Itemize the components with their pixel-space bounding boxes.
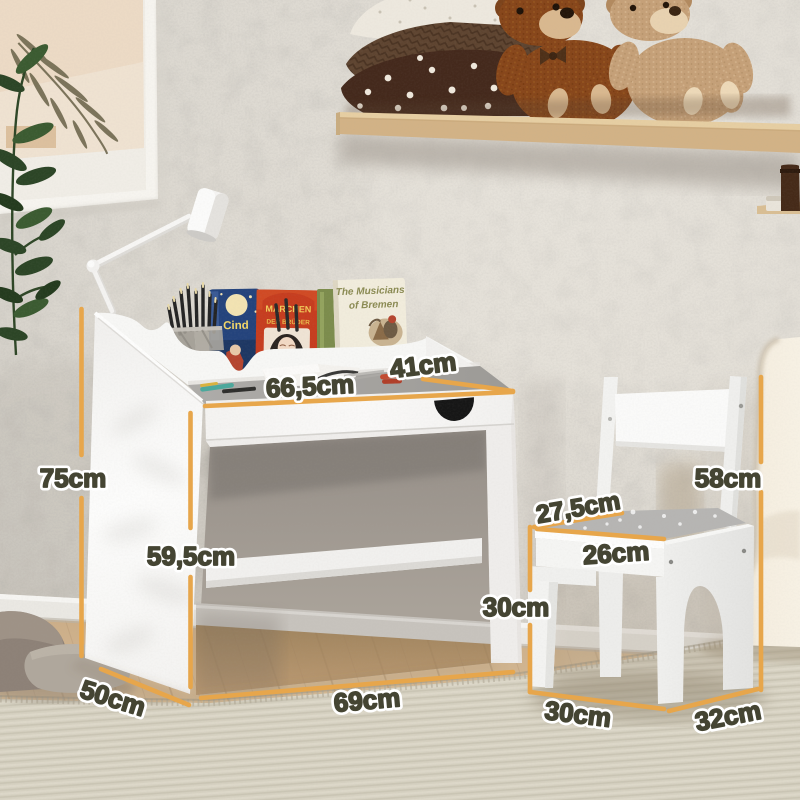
svg-text:59,5cm: 59,5cm — [147, 541, 235, 571]
svg-text:58cm: 58cm — [695, 463, 762, 493]
svg-text:30cm: 30cm — [483, 592, 550, 622]
svg-text:75cm: 75cm — [40, 463, 107, 493]
svg-text:66,5cm: 66,5cm — [265, 369, 355, 404]
svg-text:26cm: 26cm — [582, 536, 650, 571]
svg-text:69cm: 69cm — [333, 682, 402, 718]
